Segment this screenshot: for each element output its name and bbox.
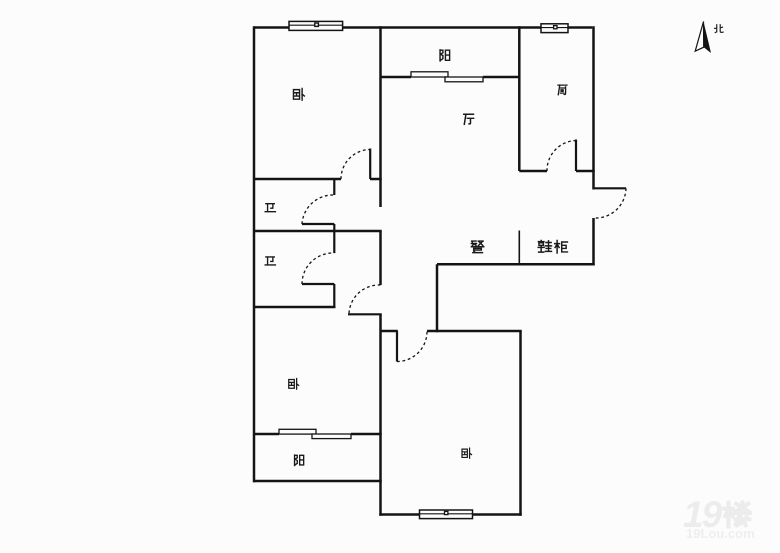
svg-text:19Lou.com: 19Lou.com xyxy=(686,526,755,541)
